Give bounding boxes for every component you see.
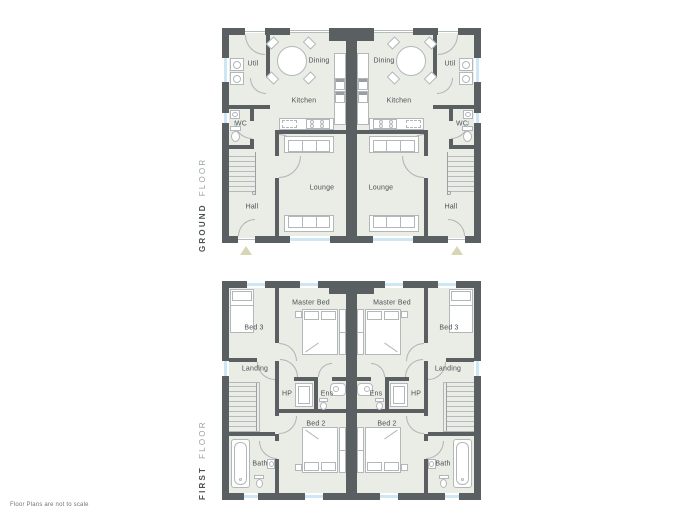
door-arc (371, 363, 385, 377)
window (445, 493, 459, 500)
entrance-arrow-icon (451, 246, 463, 255)
sink-bowl-icon (429, 461, 434, 467)
wall-segment (413, 28, 438, 35)
scale-disclaimer: Floor Plans are not to scale (10, 502, 89, 508)
room-label-dining: Dining (373, 58, 394, 65)
wall-segment (357, 377, 371, 381)
room-label-dining: Dining (308, 58, 329, 65)
staircase (447, 152, 474, 195)
wardrobe-shelf-line (357, 332, 364, 333)
window (438, 281, 456, 288)
wardrobe-shelf-line (357, 450, 364, 451)
blanket-line (449, 305, 473, 306)
wall-segment (424, 130, 428, 156)
toilet-bowl-icon (440, 479, 447, 488)
oven-detail (359, 79, 367, 82)
chimney-block (329, 28, 374, 41)
wall-segment (428, 432, 474, 436)
pillow-icon (451, 291, 471, 301)
room-label-bed2: Bed 2 (306, 421, 325, 428)
chimney-block (329, 281, 374, 294)
room-label-ens: Ens (321, 391, 334, 398)
wall-segment (403, 281, 438, 288)
room-label-hp: HP (411, 391, 421, 398)
room-label-bath: Bath (435, 461, 450, 468)
sink-bowl-icon (465, 112, 471, 117)
ground-floor-title: GROUNDFLOOR (197, 152, 209, 252)
wall-segment (413, 236, 448, 243)
first-floor-title-primary: FIRST (198, 466, 207, 500)
room-label-hall: Hall (246, 204, 259, 211)
chair-icon (387, 71, 400, 84)
sofa-cushion-line (400, 216, 401, 228)
floorplan-page: { "page": { "footnote": "Floor Plans are… (0, 0, 700, 525)
wall-segment (449, 109, 453, 121)
room-label-bed3: Bed 3 (244, 325, 263, 332)
window (474, 361, 481, 376)
room-label-master: Master Bed (292, 300, 330, 307)
room-label-util: Util (445, 61, 456, 68)
room-label-wc: WC (235, 121, 247, 128)
room-label-lounge: Lounge (310, 185, 335, 192)
room-label-ens: Ens (370, 391, 383, 398)
entrance-arrow-icon (240, 246, 252, 255)
room-label-bath: Bath (252, 461, 267, 468)
window (474, 58, 481, 82)
door-arc (426, 441, 444, 459)
wall-segment (433, 105, 474, 109)
room-label-master: Master Bed (373, 300, 411, 307)
wall-segment (474, 281, 481, 500)
stairwell-outline (443, 382, 474, 432)
wall-segment (458, 28, 481, 35)
door-arc (438, 35, 458, 55)
wall-segment (456, 281, 481, 288)
stair-newel (447, 191, 451, 195)
dining-table-icon (396, 46, 426, 76)
door-arc (405, 359, 423, 377)
pillow-icon (367, 311, 382, 320)
door-arc (448, 219, 465, 236)
wall-segment (446, 358, 474, 362)
window (474, 113, 481, 123)
first-floor-title-secondary: FLOOR (198, 420, 207, 459)
room-label-kitchen: Kitchen (292, 98, 317, 105)
wall-segment (357, 409, 424, 413)
room-label-landing: Landing (435, 366, 461, 373)
pillow-icon (367, 462, 382, 471)
first-floor-title: FIRSTFLOOR (197, 400, 209, 500)
door-arc (402, 156, 424, 178)
door-arc (406, 416, 424, 434)
chair-icon (387, 36, 400, 49)
hob-ring-icon (379, 124, 383, 128)
room-label-wc: WC (456, 121, 468, 128)
patio-window-line (374, 32, 413, 33)
sofa-cushion-line (400, 140, 401, 152)
room-label-landing: Landing (242, 366, 268, 373)
room-label-bed2: Bed 2 (377, 421, 396, 428)
wall-segment (449, 145, 474, 149)
wall-segment (357, 493, 380, 500)
drain-icon (461, 478, 464, 481)
wall-segment (357, 130, 426, 134)
party-wall (346, 281, 357, 500)
bedside-table-icon (401, 311, 408, 318)
party-wall (346, 28, 357, 243)
room-label-lounge: Lounge (369, 185, 394, 192)
sofa-cushion-line (386, 216, 387, 228)
sofa-seat (373, 216, 415, 228)
window (385, 281, 403, 288)
room-label-hall: Hall (445, 204, 458, 211)
door-threshold (438, 31, 458, 32)
pillow-icon (384, 462, 399, 471)
room-label-util: Util (248, 61, 259, 68)
washer-door-icon (462, 61, 470, 69)
wall-segment (424, 288, 428, 343)
sofa-cushion-line (386, 140, 387, 152)
fridge-detail (359, 92, 367, 95)
wall-segment (465, 236, 481, 243)
door-threshold (448, 239, 465, 240)
room-label-hp: HP (282, 391, 292, 398)
wall-segment (459, 493, 481, 500)
pillow-icon (384, 311, 399, 320)
room-label-kitchen: Kitchen (387, 98, 412, 105)
ground-floor-plan: Util Dining Kitchen WC Lounge Hall Util … (222, 28, 481, 243)
hob-icon (373, 119, 397, 129)
toilet-bowl-icon (463, 131, 472, 142)
dishwasher-icon (406, 120, 421, 128)
wall-segment (398, 493, 445, 500)
ground-floor-title-secondary: FLOOR (198, 158, 207, 197)
room-label-bed3: Bed 3 (439, 325, 458, 332)
bedside-table-icon (401, 464, 408, 471)
wall-segment (424, 178, 428, 236)
wall-segment (385, 381, 389, 409)
door-arc (437, 78, 453, 94)
sofa-seat (373, 140, 415, 152)
patio-window-line (374, 30, 413, 31)
ground-floor-title-primary: GROUND (198, 203, 207, 252)
window (380, 493, 398, 500)
first-floor-plan: Bed 3 Master Bed Landing HP Ens Bed 2 Ba… (222, 281, 481, 500)
cylinder-inner (393, 386, 405, 404)
hob-ring-icon (389, 124, 393, 128)
window (373, 236, 413, 243)
dryer-door-icon (462, 75, 470, 83)
toilet-bowl-icon (376, 402, 383, 410)
wall-segment (357, 236, 373, 243)
